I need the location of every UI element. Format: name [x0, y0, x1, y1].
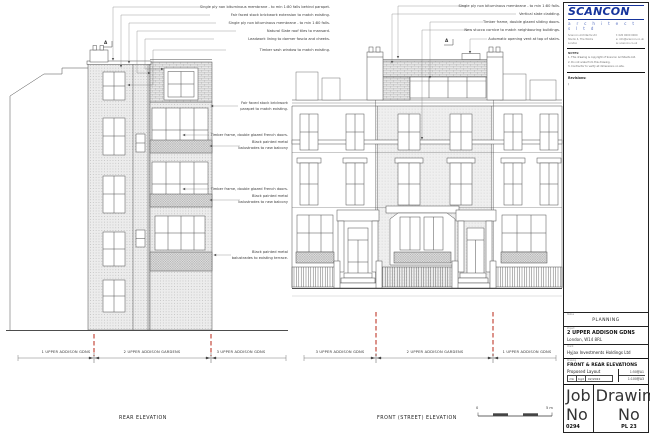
- client-field: Client Hyjax Investments Holdings Ltd: [564, 344, 648, 358]
- rear-neighbour-outline: [10, 68, 88, 330]
- divider: [567, 48, 645, 49]
- front-elevation-drawing: [292, 47, 562, 296]
- firm-logo-subtitle: a r c h i t e c t s l t d: [568, 21, 644, 31]
- callout-front-3: New stucco cornice to match neighbouring…: [464, 28, 560, 34]
- revisions-value: /: [568, 82, 644, 86]
- drawing-sheet: Single ply non bituminous membrane - to …: [0, 0, 650, 433]
- revisions-block: Revisions: /: [564, 74, 648, 88]
- callout-front-4: Automatic opening vent at top of stairs.: [488, 37, 560, 43]
- rear-balcony-rail-f1: [150, 140, 212, 153]
- callout-rear-4: Leadwork lining to dormer fascia and che…: [248, 37, 330, 43]
- status-field: Status PLANNING: [564, 312, 648, 326]
- front-aov: [462, 54, 480, 60]
- callout-mid-2: Black painted metal balustrades to new b…: [238, 140, 288, 152]
- project-name: 2 UPPER ADDISON GDNS: [567, 330, 645, 336]
- drawn-checked-date-cells: mk bgd 02/2022: [567, 375, 613, 382]
- front-right-house-gf: [501, 215, 547, 263]
- rear-lower-doors: [155, 216, 205, 250]
- divider: [567, 72, 645, 73]
- front-elevation-title: FRONT (STREET) ELEVATION: [377, 416, 457, 421]
- callout-front-2: Timber frame, double glazed sliding door…: [483, 20, 560, 26]
- checked-by: bgd: [577, 376, 587, 381]
- callout-front-1: Vertical slate cladding.: [519, 12, 560, 18]
- scale-a3: 1:100@A3: [619, 376, 645, 382]
- firm-logo: SCANCON a r c h i t e c t s l t d: [564, 3, 648, 32]
- drawing-number: PL 23: [596, 424, 650, 430]
- notes-block: NOTES: 1. This drawing is copyright of S…: [564, 50, 648, 70]
- callout-rear-1: Fair faced stock brickwork extension to …: [231, 13, 330, 19]
- elevations-linework: [0, 0, 650, 433]
- firm-logo-name: SCANCON: [568, 5, 644, 20]
- drawn-by: mk: [568, 376, 577, 381]
- front-roof-extension: [382, 54, 488, 101]
- revisions-label: Revisions:: [568, 76, 644, 80]
- scalebar-zero-label: 0: [476, 406, 478, 410]
- drawing-subtitle: Proposed Layout: [567, 369, 618, 374]
- drawing-number-cell: Drawing No PL 23: [594, 385, 650, 432]
- job-number: 0294: [566, 424, 591, 430]
- callout-mid-4: Black painted metal balustrades to new b…: [238, 194, 288, 206]
- callout-rear-3: Natural Slate roof tiles to mansard.: [267, 29, 330, 35]
- callout-mid-5: Black painted metal balustrades to exist…: [232, 250, 288, 262]
- drawing-title-text: FRONT & REAR ELEVATIONS: [567, 363, 645, 368]
- scale-box: 1:50@A1 1:100@A3: [618, 369, 645, 383]
- number-row: Job No 0294 Drawing No PL 23 Rev /: [564, 384, 648, 432]
- callout-mid-1: Timber frame, double glazed French doors…: [211, 133, 288, 139]
- firm-contact-block: Scancon Architects Ltd Studio 4, The Wor…: [564, 32, 648, 48]
- client-name: Hyjax Investments Holdings Ltd: [567, 349, 645, 356]
- title-block: SCANCON a r c h i t e c t s l t d Scanco…: [563, 2, 649, 433]
- street-label-front-3: 3 UPPER ADDISON GDNS: [285, 350, 395, 354]
- scale-bar: [478, 413, 552, 417]
- callout-rear-0: Single ply non bituminous membrane - to …: [200, 5, 330, 11]
- section-marker-a-front: A: [445, 38, 448, 43]
- drawing-field: Drawing FRONT & REAR ELEVATIONS Proposed…: [564, 358, 648, 384]
- job-number-cell: Job No 0294: [564, 385, 594, 432]
- rear-balcony-rail-f2: [150, 194, 212, 207]
- callout-rear-2: Single ply non bituminous membrane - to …: [229, 21, 330, 27]
- callout-mid-3: Timber frame, double glazed French doors…: [211, 187, 288, 193]
- rear-terrace-rail: [150, 252, 212, 271]
- project-address: London, W14 8RL: [567, 337, 645, 342]
- rear-chimney: [90, 46, 108, 63]
- scalebar-max-label: 5 m: [546, 406, 553, 410]
- callout-mid-0: Fair faced stock brickwork parapet to ma…: [240, 101, 288, 113]
- dimension-lines: [18, 353, 556, 363]
- callout-rear-5: Timber sash window to match existing.: [260, 48, 330, 54]
- section-marker-a-rear: A: [104, 40, 107, 45]
- scale-a1: 1:50@A1: [619, 369, 645, 376]
- callout-front-0: Single ply non bituminous membrane - to …: [459, 4, 560, 10]
- date-value: 02/2022: [586, 376, 601, 381]
- firm-contact-details: t: 020 0000 0000 e: info@scancon.co.uk w…: [616, 34, 644, 47]
- project-field: Project 2 UPPER ADDISON GDNS London, W14…: [564, 326, 648, 345]
- rear-elevation-title: REAR ELEVATION: [119, 416, 167, 421]
- firm-address: Scancon Architects Ltd Studio 4, The Wor…: [568, 34, 597, 47]
- status-value: PLANNING: [567, 317, 645, 324]
- street-label-rear-3: 3 UPPER ADDISON GDNS: [186, 350, 296, 354]
- rear-dormer: [164, 68, 198, 100]
